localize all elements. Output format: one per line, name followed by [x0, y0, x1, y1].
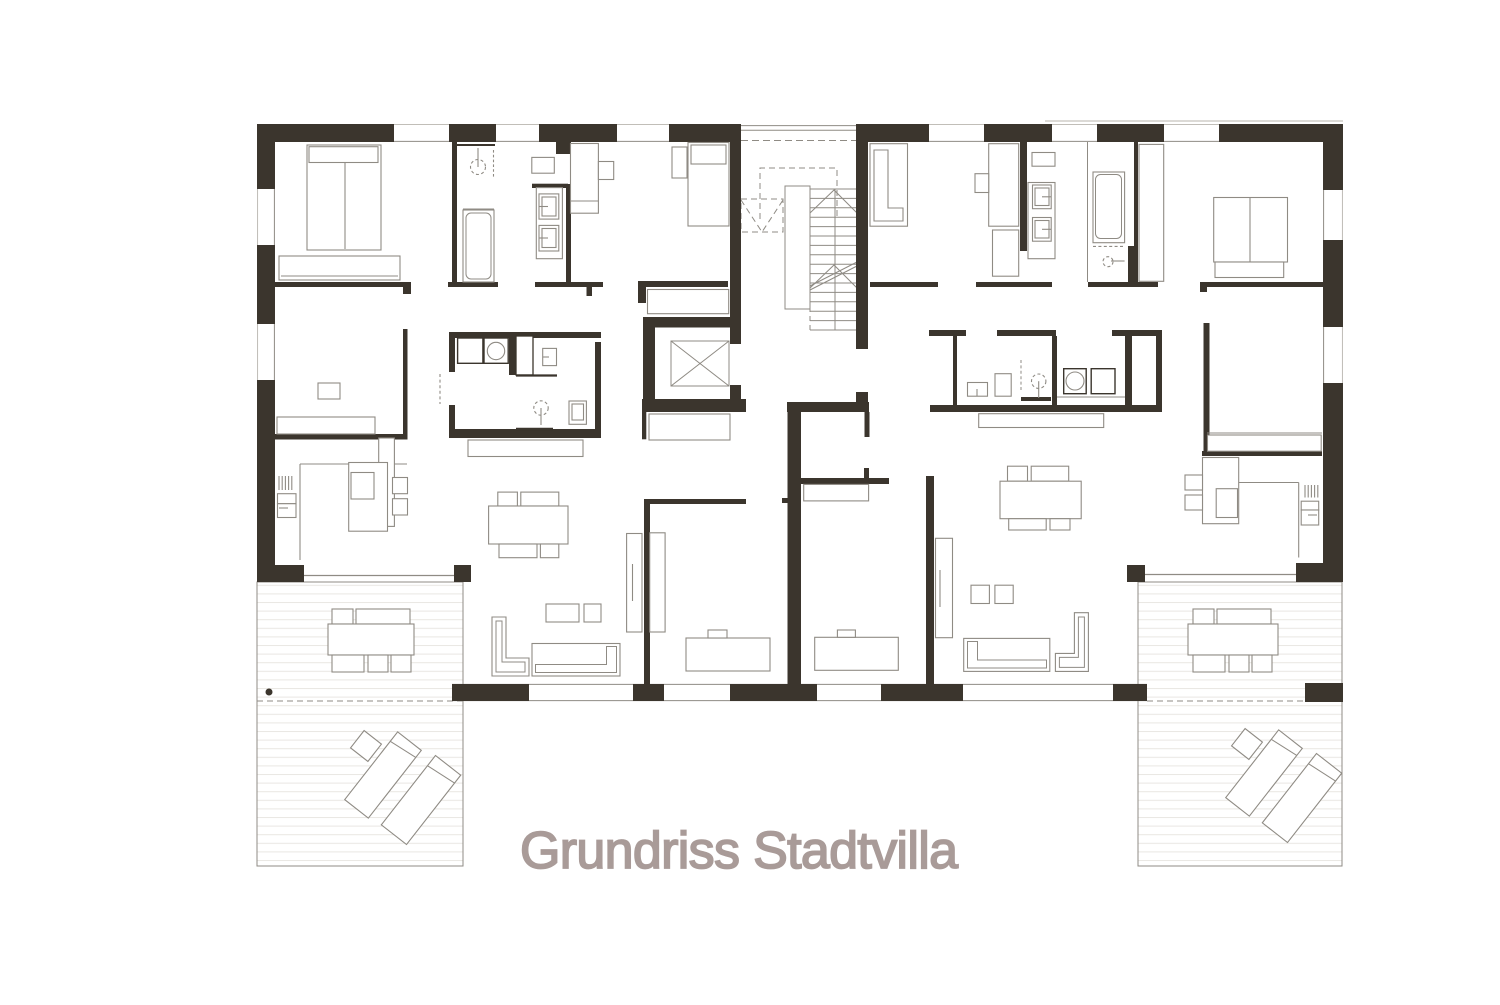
svg-text:Grundriss Stadtvilla: Grundriss Stadtvilla — [520, 822, 958, 880]
